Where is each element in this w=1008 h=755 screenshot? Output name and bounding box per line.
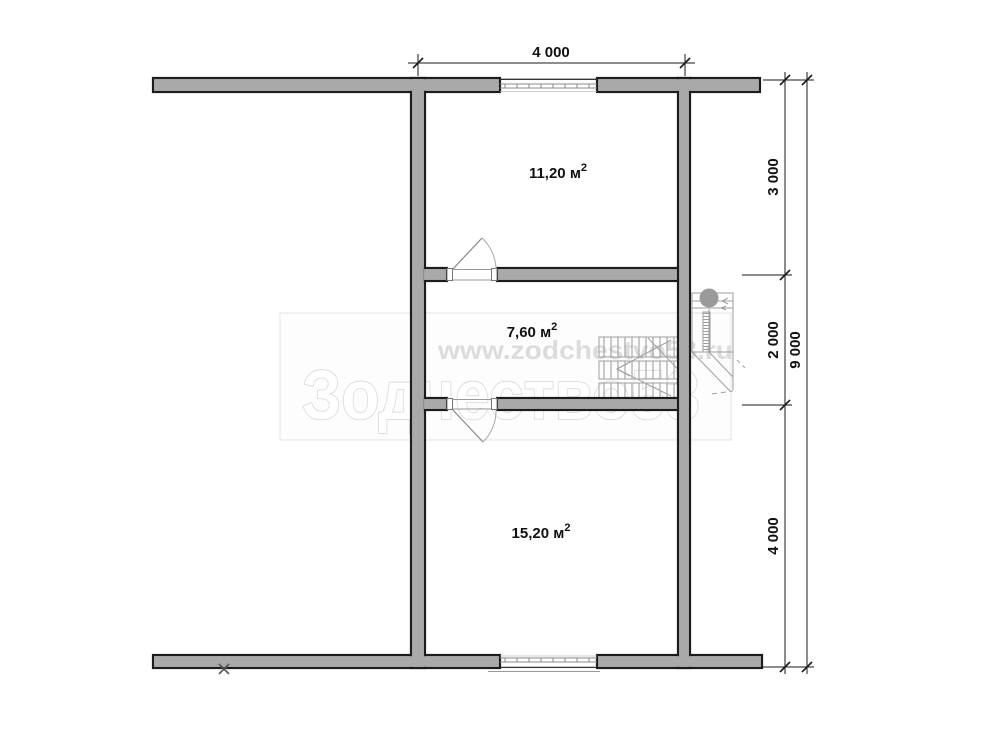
floor-plan-page: www.zodchestvo53.ru Зодчество53 <box>0 0 1008 755</box>
window-top-icon <box>500 79 597 91</box>
dim-right-4000: 4 000 <box>765 517 782 555</box>
dim-right-3000: 3 000 <box>765 158 782 196</box>
door-upper-icon <box>447 238 497 281</box>
dim-right-2000: 2 000 <box>765 321 782 359</box>
dim-right-total: 9 000 <box>787 331 804 369</box>
room-label-lower: 15,20 м2 <box>512 522 571 542</box>
column-icon <box>700 289 719 308</box>
floor-plan-drawing: www.zodchestvo53.ru Зодчество53 <box>0 0 1008 755</box>
room-label-upper: 11,20 м2 <box>529 162 587 182</box>
window-bottom-icon <box>488 656 600 672</box>
dim-top-width: 4 000 <box>532 44 570 61</box>
room-label-middle: 7,60 м2 <box>507 321 558 341</box>
